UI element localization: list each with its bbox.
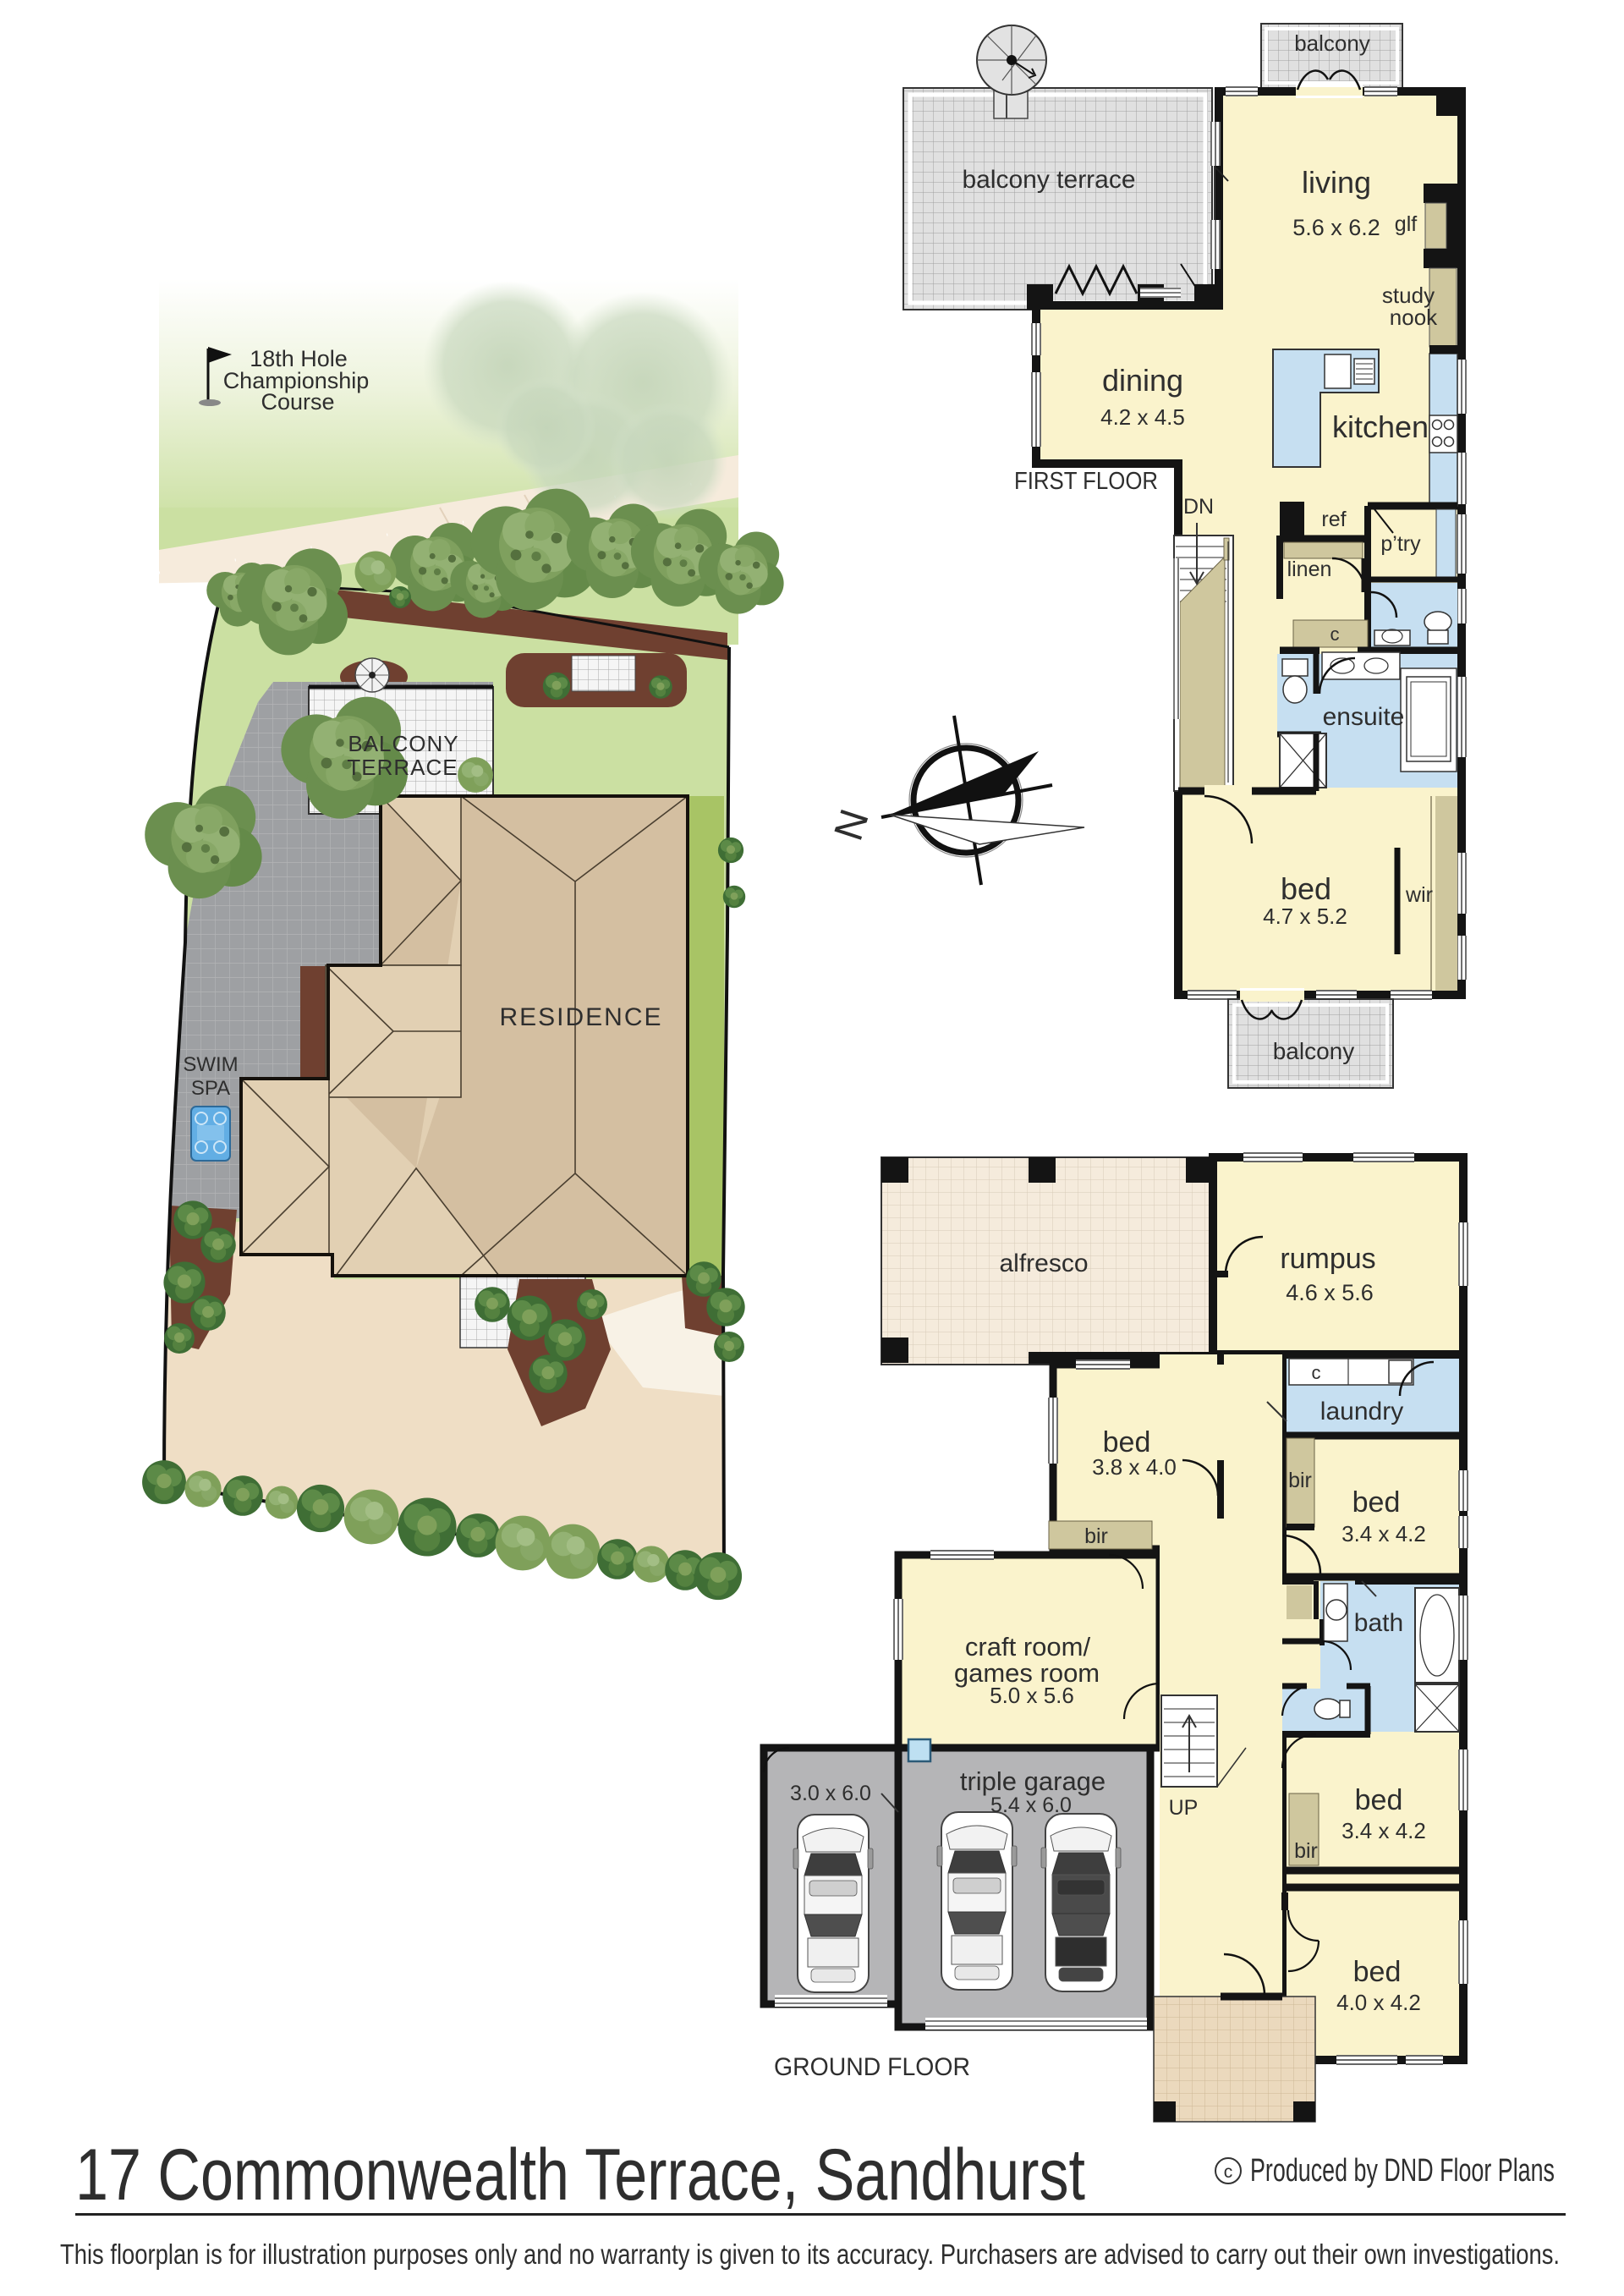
svg-text:bir: bir [1288,1469,1312,1492]
svg-text:TERRACE: TERRACE [347,755,458,780]
svg-text:p’try: p’try [1380,532,1421,556]
svg-text:3.4 x 4.2: 3.4 x 4.2 [1341,1521,1426,1546]
svg-text:bed: bed [1355,1784,1403,1816]
svg-text:FIRST FLOOR: FIRST FLOOR [1014,468,1158,495]
svg-text:5.0 x 5.6: 5.0 x 5.6 [990,1683,1074,1708]
svg-text:Course: Course [261,389,334,415]
svg-text:4.2 x 4.5: 4.2 x 4.5 [1100,404,1185,430]
svg-text:kitchen: kitchen [1332,409,1429,444]
svg-text:bir: bir [1294,1839,1318,1863]
svg-text:alfresco: alfresco [999,1250,1088,1277]
svg-text:4.6 x 5.6: 4.6 x 5.6 [1286,1280,1374,1305]
svg-text:bed: bed [1353,1956,1402,1988]
svg-text:SWIM: SWIM [183,1053,238,1076]
svg-text:balcony terrace: balcony terrace [962,166,1135,194]
svg-text:This floorplan is for illustra: This floorplan is for illustration purpo… [60,2238,1560,2270]
svg-text:SPA: SPA [191,1077,230,1100]
svg-text:balcony: balcony [1294,30,1370,56]
svg-text:3.0 x 6.0: 3.0 x 6.0 [790,1782,871,1805]
svg-text:triple garage: triple garage [960,1766,1106,1796]
svg-text:laundry: laundry [1320,1398,1403,1425]
svg-text:bir: bir [1084,1524,1108,1548]
svg-text:bed: bed [1281,871,1331,906]
svg-text:ensuite: ensuite [1323,703,1405,731]
svg-text:Produced by DND Floor Plans: Produced by DND Floor Plans [1250,2153,1555,2189]
svg-text:3.8 x 4.0: 3.8 x 4.0 [1092,1454,1177,1480]
svg-text:UP: UP [1169,1796,1199,1820]
svg-text:dining: dining [1102,363,1183,398]
svg-text:3.4 x 4.2: 3.4 x 4.2 [1341,1818,1426,1843]
svg-text:craft room/: craft room/ [965,1632,1091,1662]
svg-text:17 Commonwealth Terrace, Sandh: 17 Commonwealth Terrace, Sandhurst [75,2134,1085,2216]
svg-text:BALCONY: BALCONY [348,731,458,756]
svg-text:4.0 x 4.2: 4.0 x 4.2 [1336,1990,1421,2015]
svg-text:glf: glf [1395,212,1417,236]
svg-text:balcony: balcony [1273,1038,1355,1064]
svg-text:c: c [1330,623,1340,645]
svg-text:c: c [1312,1362,1321,1383]
svg-text:ref: ref [1321,508,1346,531]
svg-text:nook: nook [1390,305,1438,330]
svg-text:GROUND FLOOR: GROUND FLOOR [774,2053,970,2081]
svg-text:bed: bed [1352,1486,1401,1519]
svg-text:5.4 x 6.0: 5.4 x 6.0 [990,1793,1072,1817]
svg-text:rumpus: rumpus [1280,1243,1375,1275]
svg-text:living: living [1302,165,1371,200]
svg-text:RESIDENCE: RESIDENCE [499,1003,662,1031]
svg-text:5.6 x 6.2: 5.6 x 6.2 [1292,215,1380,240]
svg-text:linen: linen [1287,558,1332,581]
svg-text:wir: wir [1405,883,1433,907]
svg-text:c: c [1224,2162,1233,2182]
svg-text:4.7 x 5.2: 4.7 x 5.2 [1263,904,1347,929]
svg-text:DN: DN [1183,495,1214,519]
svg-text:bath: bath [1354,1609,1403,1637]
